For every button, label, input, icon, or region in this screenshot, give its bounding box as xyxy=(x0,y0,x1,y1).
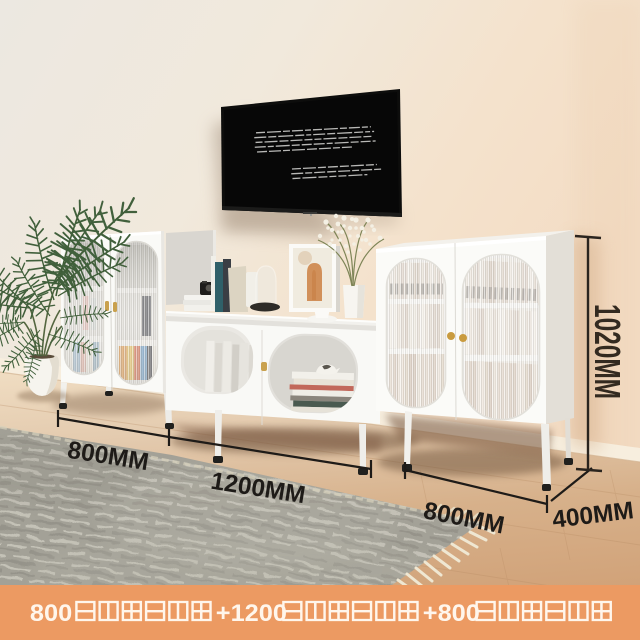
svg-text:800: 800 xyxy=(30,601,72,627)
svg-text:1020MM: 1020MM xyxy=(587,304,628,399)
svg-text:+800: +800 xyxy=(423,601,480,627)
svg-text:+1200: +1200 xyxy=(216,601,287,627)
